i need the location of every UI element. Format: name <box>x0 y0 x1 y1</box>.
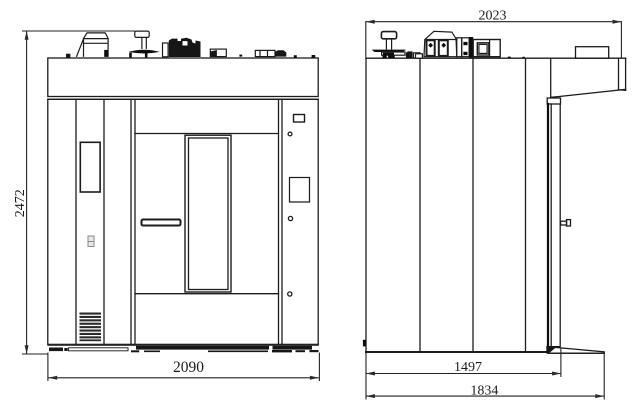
svg-text:2090: 2090 <box>173 359 204 376</box>
svg-text:2472: 2472 <box>13 189 28 217</box>
svg-text:2023: 2023 <box>479 9 507 24</box>
svg-text:1497: 1497 <box>454 360 482 375</box>
svg-text:1834: 1834 <box>470 384 498 399</box>
